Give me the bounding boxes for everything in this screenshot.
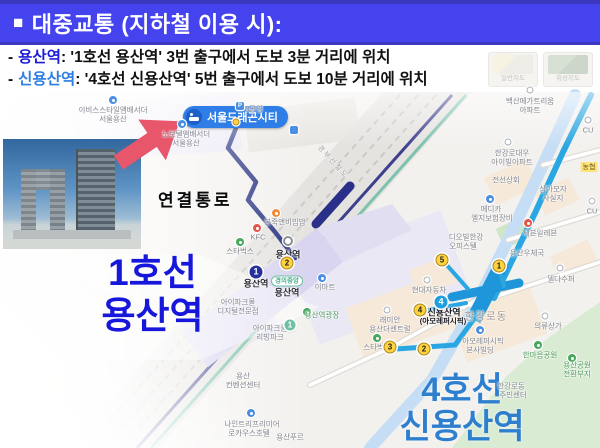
map-label: 용산푸르 <box>276 432 304 443</box>
poi-ydot-icon <box>233 119 240 126</box>
line4-station-badge: 4 <box>435 296 448 309</box>
poi-blue-icon <box>476 326 484 334</box>
poi-wc-icon <box>384 307 391 314</box>
poi-wc-icon <box>505 139 512 146</box>
poi-wc-icon <box>527 87 534 94</box>
map-label: 스타벅스 <box>226 246 254 257</box>
bed-icon <box>186 109 202 125</box>
poi-blue-icon <box>486 195 494 203</box>
map-label: 이마트 <box>315 282 336 293</box>
slide-title: 대중교통 (지하철 이용 시): <box>32 7 283 39</box>
map-label: CU <box>587 207 598 216</box>
poi-korail-icon <box>283 236 293 246</box>
gyeongui-line-pill: 경의중앙 <box>271 276 303 287</box>
line1-station-badge: 1 <box>250 266 263 279</box>
map-label: 용산역광장 <box>305 310 340 321</box>
map-layer-thumb-image <box>493 55 533 74</box>
slide-title-bar: ■ 대중교통 (지하철 이용 시): <box>0 0 600 45</box>
map-label: 세븐일레븐 <box>523 228 558 239</box>
map-label: 3공영 <box>245 104 263 115</box>
map-label: 서울용산 <box>99 114 127 125</box>
map-label: 농협 <box>581 162 598 172</box>
map-label: 아파트 <box>520 105 541 116</box>
map-label: 용산우체국 <box>510 248 545 259</box>
station-name-yongsan: 용산역 <box>18 49 61 66</box>
poi-red-icon <box>524 219 532 227</box>
exit-number-badge: 4 <box>414 304 427 317</box>
exit-number-badge: 3 <box>384 341 397 354</box>
poi-red-icon <box>253 224 261 232</box>
hotel-name: 서울드래곤시티 <box>207 109 278 125</box>
poi-wc-icon <box>542 313 549 320</box>
map-label: 리빙파크 <box>256 332 284 343</box>
map-label: 서울용산 <box>172 138 200 149</box>
gyeongui-exit-badge: 1 <box>285 320 296 331</box>
map-label: 본죽앤비빔밥 <box>264 217 305 228</box>
line1-yongsan-big-label: 1호선 용산역 <box>70 252 235 338</box>
square-bullet-icon: ■ <box>13 13 24 33</box>
map-label: 아이빌아파트 <box>491 157 532 168</box>
poi-wc-icon <box>557 265 564 272</box>
map-label: KFC <box>251 233 266 242</box>
connecting-passage-label: 연결통로 <box>158 186 233 211</box>
map-label: 오피스텔 <box>449 241 477 252</box>
map-label: 로카우스호텔 <box>228 428 269 439</box>
poi-green-icon <box>534 341 542 349</box>
exit-number-badge: 1 <box>493 260 506 273</box>
map-label: 한강로동 <box>465 309 508 324</box>
poi-wc-icon <box>589 198 596 205</box>
poi-wc-icon <box>585 117 592 124</box>
direction-line-yongsan: -용산역: '1호선 용산역' 3번 출구에서 도보 3분 거리에 위치 <box>8 47 428 69</box>
exit-number-badge: 2 <box>281 257 294 270</box>
map-layer-thumb-normal: 일반지도 <box>488 52 538 87</box>
station-name-sinyongsan: 신용산역 <box>18 71 75 88</box>
map-label: 현대자동차 <box>412 285 447 296</box>
map-label: CU <box>583 126 594 135</box>
map-label: 엘지보험장비 <box>471 213 512 224</box>
map-label: 사실지 <box>543 193 564 204</box>
poi-sq-icon: P <box>236 102 244 110</box>
poi-blue-icon <box>247 409 255 417</box>
map-label: 한마음공원 <box>523 350 558 361</box>
line4-sinyongsan-big-label: 4호선 신용산역 <box>358 372 566 447</box>
map-label: (아모레퍼시픽) <box>420 316 466 327</box>
map-label: 전선상회 <box>492 175 520 186</box>
directions-list: -용산역: '1호선 용산역' 3번 출구에서 도보 3분 거리에 위치 -신용… <box>8 47 428 91</box>
map-label: 주민센터 <box>499 390 527 401</box>
exit-number-badge: 2 <box>418 343 431 356</box>
map-label: 전환부지 <box>563 369 591 380</box>
map-label: 본사빌딩 <box>466 345 494 356</box>
map-layer-thumb-image <box>548 55 588 74</box>
map-label: 델다수퍼 <box>547 274 575 285</box>
poi-blue-icon <box>178 120 186 128</box>
map-label: 용산역 <box>275 286 300 299</box>
poi-blue-icon <box>109 96 117 104</box>
map-label: 컨벤션센터 <box>226 380 261 391</box>
map-label: 디지털전문점 <box>217 306 258 317</box>
poi-sq-icon <box>290 126 298 134</box>
map-layer-thumb-satellite: 위성지도 <box>543 52 593 87</box>
direction-line-sinyongsan: -신용산역: '4호선 신용산역' 5번 출구에서 도보 10분 거리에 위치 <box>8 69 428 91</box>
map-label: 의류상가 <box>534 321 562 332</box>
poi-wc-icon <box>424 277 431 284</box>
exit-number-badge: 5 <box>436 254 449 267</box>
map-label: 용산더센트럴 <box>369 324 410 335</box>
